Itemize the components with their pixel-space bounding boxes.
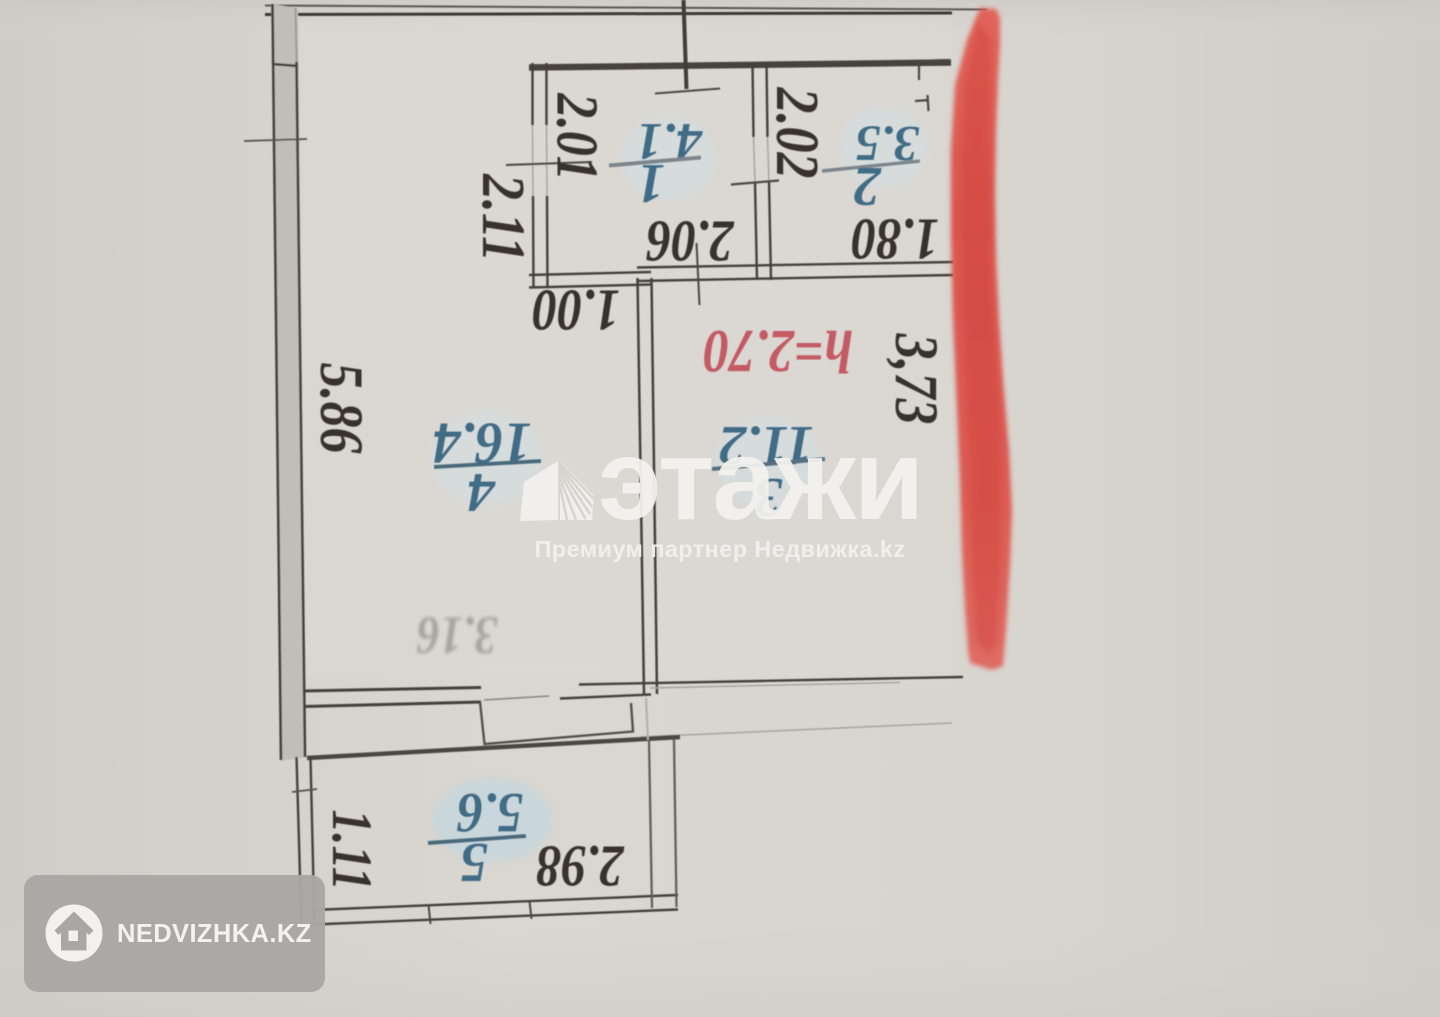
svg-text:2.98: 2.98 <box>536 834 624 900</box>
svg-text:2.06: 2.06 <box>646 209 735 275</box>
svg-text:3,73: 3,73 <box>882 333 950 425</box>
svg-text:5: 5 <box>460 831 488 893</box>
svg-text:h=2.70: h=2.70 <box>703 317 853 385</box>
svg-text:1: 1 <box>637 152 665 214</box>
svg-text:2: 2 <box>853 155 882 217</box>
svg-text:1.11: 1.11 <box>320 809 383 890</box>
svg-text:3.16: 3.16 <box>416 606 498 666</box>
svg-text:2.11: 2.11 <box>469 173 537 262</box>
svg-text:этажи: этажи <box>598 416 923 544</box>
svg-text:NEDVIZHKA.KZ: NEDVIZHKA.KZ <box>117 920 312 948</box>
svg-text:2.02: 2.02 <box>763 87 831 179</box>
svg-text:Премиум партнер Недвижка.kz: Премиум партнер Недвижка.kz <box>535 536 906 562</box>
svg-text:2.01: 2.01 <box>545 92 611 180</box>
svg-text:1.00: 1.00 <box>532 278 619 344</box>
svg-text:5.86: 5.86 <box>307 363 375 454</box>
svg-text:4: 4 <box>467 461 496 523</box>
